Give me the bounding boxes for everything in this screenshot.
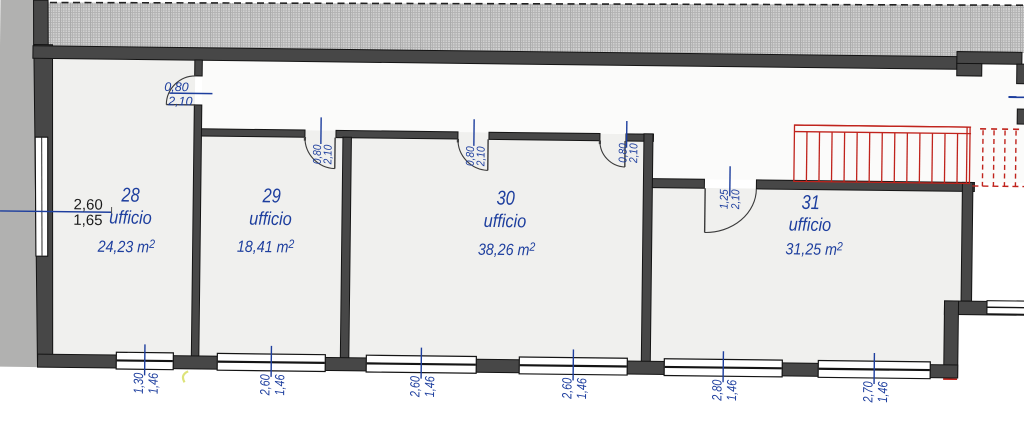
svg-text:2,70: 2,70 xyxy=(860,381,876,403)
svg-text:2,60: 2,60 xyxy=(559,378,575,400)
svg-text:1,46: 1,46 xyxy=(145,373,161,394)
svg-text:ufficio: ufficio xyxy=(109,206,152,228)
svg-text:28: 28 xyxy=(120,183,140,206)
svg-text:2,10: 2,10 xyxy=(322,145,335,166)
svg-text:ufficio: ufficio xyxy=(249,208,292,230)
svg-text:2,10: 2,10 xyxy=(167,94,193,108)
svg-text:38,26 m2: 38,26 m2 xyxy=(478,241,536,260)
svg-text:2,10: 2,10 xyxy=(730,189,743,210)
svg-text:2,80: 2,80 xyxy=(709,379,725,401)
svg-text:1,46: 1,46 xyxy=(422,376,438,397)
svg-text:31,25 m2: 31,25 m2 xyxy=(785,240,843,259)
svg-text:0,80: 0,80 xyxy=(164,80,189,94)
svg-text:ufficio: ufficio xyxy=(484,210,527,232)
svg-text:2,10: 2,10 xyxy=(475,146,488,167)
svg-text:1,65: 1,65 xyxy=(73,212,102,229)
svg-text:31: 31 xyxy=(801,190,820,213)
svg-text:ufficio: ufficio xyxy=(789,213,832,235)
svg-text:1,46: 1,46 xyxy=(574,378,590,399)
svg-text:2,60: 2,60 xyxy=(407,376,423,398)
svg-text:1,46: 1,46 xyxy=(272,374,288,395)
svg-text:1,46: 1,46 xyxy=(724,380,740,401)
svg-text:1,46: 1,46 xyxy=(875,381,891,402)
svg-text:1,30: 1,30 xyxy=(131,373,147,394)
svg-text:30: 30 xyxy=(496,186,515,209)
svg-text:2,10: 2,10 xyxy=(628,143,641,164)
svg-text:29: 29 xyxy=(262,184,281,207)
svg-text:2,60: 2,60 xyxy=(257,374,273,396)
svg-text:24,23 m2: 24,23 m2 xyxy=(97,238,156,257)
svg-text:18,41 m2: 18,41 m2 xyxy=(237,238,295,257)
